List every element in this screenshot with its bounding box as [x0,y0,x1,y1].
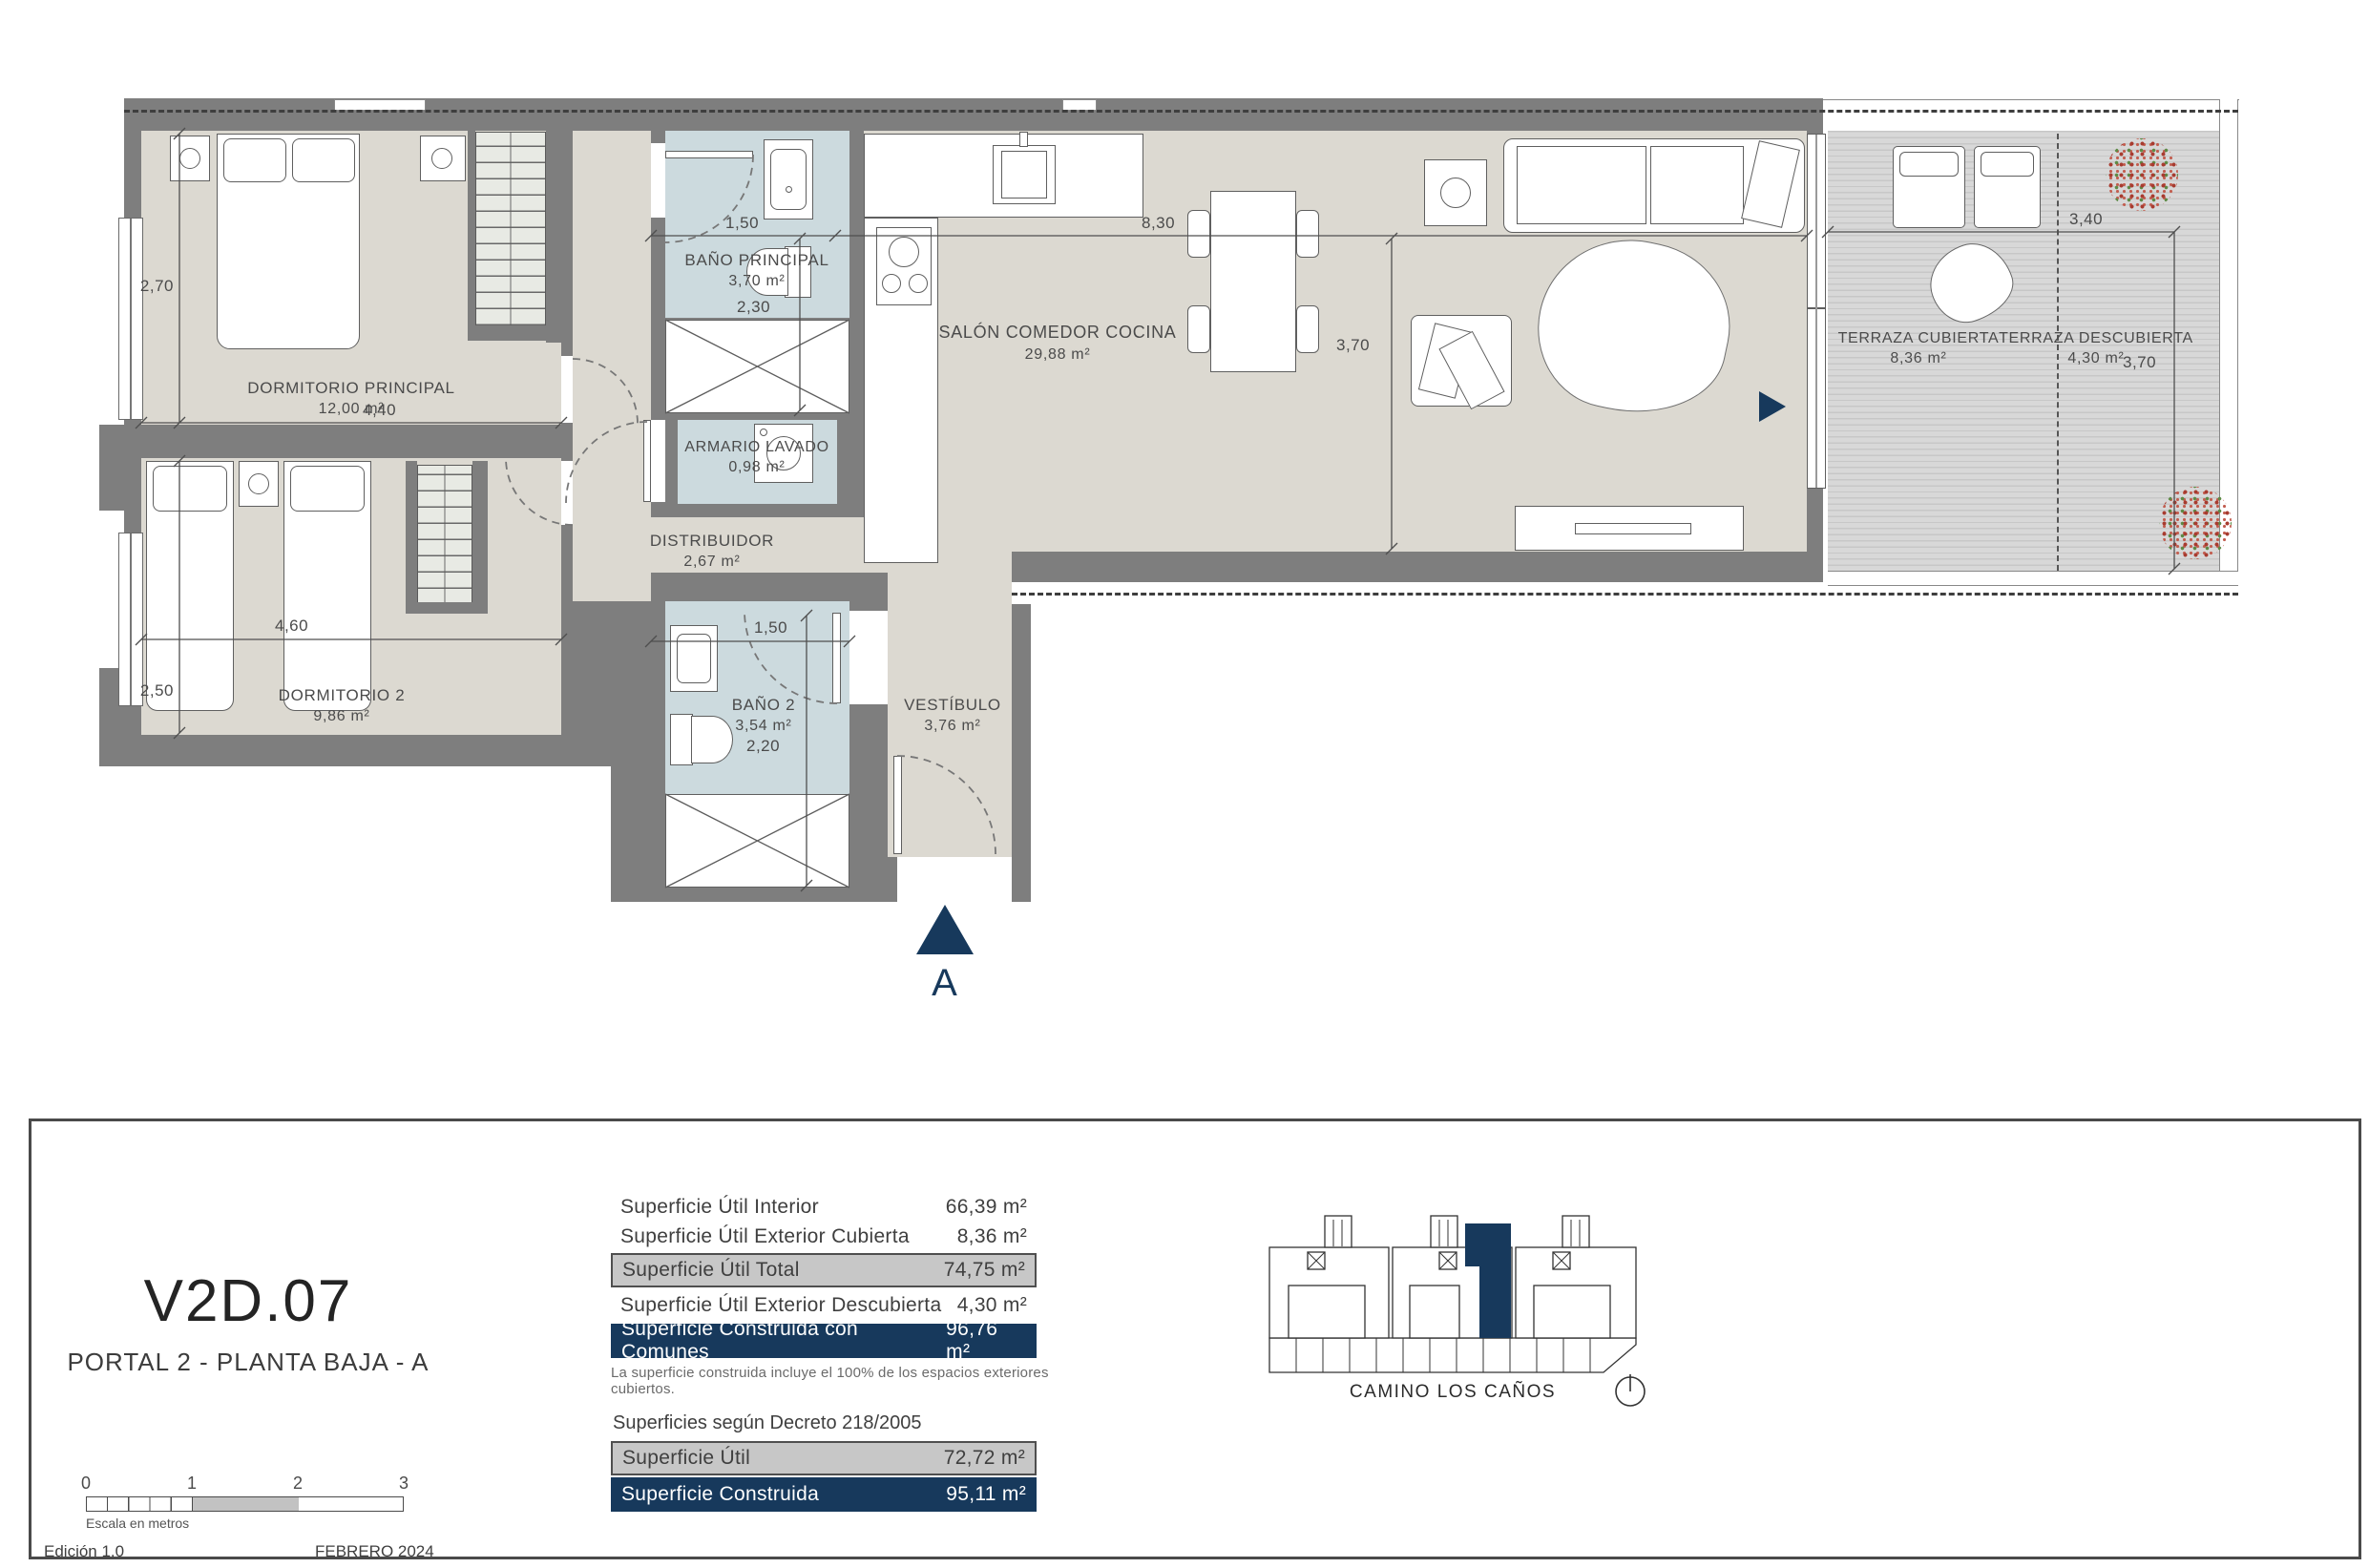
dim-label: 2,20 [746,737,780,756]
plant-icon [2159,487,2232,559]
lamp-icon [1440,178,1471,208]
scale-tick: 0 [67,1474,105,1494]
room-label-armario-lavado: ARMARIO LAVADO 0,98 m² [684,437,828,477]
boundary-dashed-line [1012,593,2238,596]
shower-tray [665,320,849,413]
dining-table [1210,191,1296,372]
dim-label: 4,60 [275,617,308,636]
room-label-dormitorio-principal: DORMITORIO PRINCIPAL 12,00 m² [247,378,454,420]
dim-label: 2,50 [124,681,174,700]
decree-heading: Superficies según Decreto 218/2005 [613,1412,922,1434]
sliding-door [1807,134,1826,489]
wall [472,461,488,612]
plant-icon [2106,138,2178,211]
wall [406,461,417,612]
lamp-icon [248,473,269,494]
toilet-bowl [691,716,733,763]
burner [909,274,928,293]
door-opening [561,461,573,525]
wall [406,602,488,614]
pillow [223,138,286,182]
pillow [290,466,365,512]
dining-chair [1187,210,1210,258]
door-leaf [893,756,902,854]
wardrobe [417,465,472,606]
dim-label: 2,30 [737,298,770,317]
surface-row-total: Superficie Útil Total74,75 m² [611,1253,1037,1287]
dining-chair [1187,305,1210,353]
wall [546,131,569,343]
wardrobe [475,132,546,326]
surface-row-construida: Superficie Construida con Comunes96,76 m… [611,1324,1037,1358]
burner [889,237,919,267]
scale-bar [86,1496,404,1512]
kitchen-sink [993,145,1056,204]
date-label: FEBRERO 2024 [315,1542,434,1561]
dim-label: 3,70 [2123,353,2156,372]
scale-tick: 1 [173,1474,211,1494]
toilet-icon [670,714,693,765]
door-leaf [643,420,651,502]
decree-row: Superficie Construida95,11 m² [611,1477,1037,1512]
surface-row: Superficie Útil Exterior Descubierta4,30… [611,1292,1037,1319]
unit-code: V2D.07 [57,1267,439,1335]
kitchen-faucet [1019,132,1028,147]
dim-label: 2,70 [124,277,174,296]
window [118,218,143,420]
door-leaf [665,151,753,158]
surface-row: Superficie Útil Exterior Cubierta8,36 m² [611,1223,1037,1250]
floor-distribuidor [573,131,651,601]
scale-tick: 3 [385,1474,423,1494]
entrance-label: A [916,962,974,1005]
entrance-opening [897,857,1012,902]
burner [882,274,901,293]
entrance-arrow-icon [916,905,974,954]
surface-note: La superficie construida incluye el 100%… [611,1365,1050,1397]
scale-tick: 2 [279,1474,317,1494]
key-plan [1262,1204,1644,1376]
dining-chair [1296,305,1319,353]
dining-chair [1296,210,1319,258]
room-label-bano-principal: BAÑO PRINCIPAL 3,70 m² [684,250,828,292]
shower-tray [665,794,849,888]
washer-knob [760,429,767,436]
door-opening [561,356,573,423]
lounger-pillow [1899,152,1959,177]
lounger-pillow [1981,152,2034,177]
street-label: CAMINO LOS CAÑOS [1310,1382,1596,1403]
dim-label: 1,50 [725,214,759,233]
floorplan-sheet: DORMITORIO PRINCIPAL 12,00 m² DORMITORIO… [0,0,2369,1568]
terrace-roof-band [1823,99,2239,132]
dim-label: 4,40 [363,401,396,420]
pillow [153,466,227,512]
window [118,533,143,706]
bathroom-sink [764,139,813,220]
terrace-access-arrow-icon [1759,391,1786,422]
key-plan-base [1269,1338,1636,1372]
lamp-icon [179,148,200,169]
room-label-distribuidor: DISTRIBUIDOR 2,67 m² [650,531,774,573]
room-label-bano-2: BAÑO 2 3,54 m² [732,695,796,737]
north-compass-icon [1609,1369,1651,1411]
room-label-vestibulo: VESTÍBULO 3,76 m² [904,695,1001,737]
wall [468,325,569,341]
wall [468,131,475,339]
sofa-cushion [1517,146,1646,224]
door-leaf [832,613,841,703]
door-opening [651,420,665,502]
dim-label: 3,70 [1336,336,1370,355]
door-opening [849,611,888,704]
dim-label: 3,40 [2069,210,2103,229]
scale-caption: Escala en metros [86,1516,189,1531]
boundary-dashed-line [124,110,2238,113]
surface-row: Superficie Útil Interior66,39 m² [611,1194,1037,1221]
room-label-salon: SALÓN COMEDOR COCINA 29,88 m² [938,322,1176,365]
dim-label: 1,50 [754,618,787,638]
unit-subtitle: PORTAL 2 - PLANTA BAJA - A [57,1348,439,1377]
terrace-bottom-band [1828,571,2238,586]
dim-label: 8,30 [1142,214,1175,233]
sofa-cushion [1650,146,1744,224]
edition-label: Edición 1.0 [44,1542,124,1561]
room-label-terraza-cubierta: TERRAZA CUBIERTA 8,36 m² [1838,328,2000,368]
room-label-dormitorio-2: DORMITORIO 2 9,86 m² [279,685,406,727]
lamp-icon [431,148,452,169]
bathroom-sink [670,625,718,692]
tv-screen [1575,523,1691,534]
decree-row: Superficie Útil72,72 m² [611,1441,1037,1475]
room-label-terraza-descubierta: TERRAZA DESCUBIERTA 4,30 m² [1999,328,2193,368]
title-block-panel [29,1119,2361,1559]
pillow [292,138,355,182]
door-opening [651,143,665,218]
